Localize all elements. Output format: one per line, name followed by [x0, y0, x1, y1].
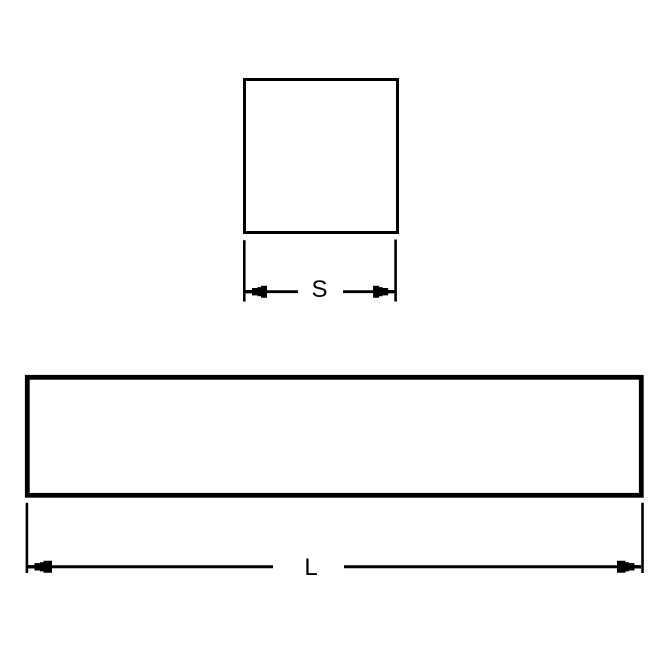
svg-text:S: S [311, 276, 327, 303]
svg-text:L: L [304, 554, 317, 581]
